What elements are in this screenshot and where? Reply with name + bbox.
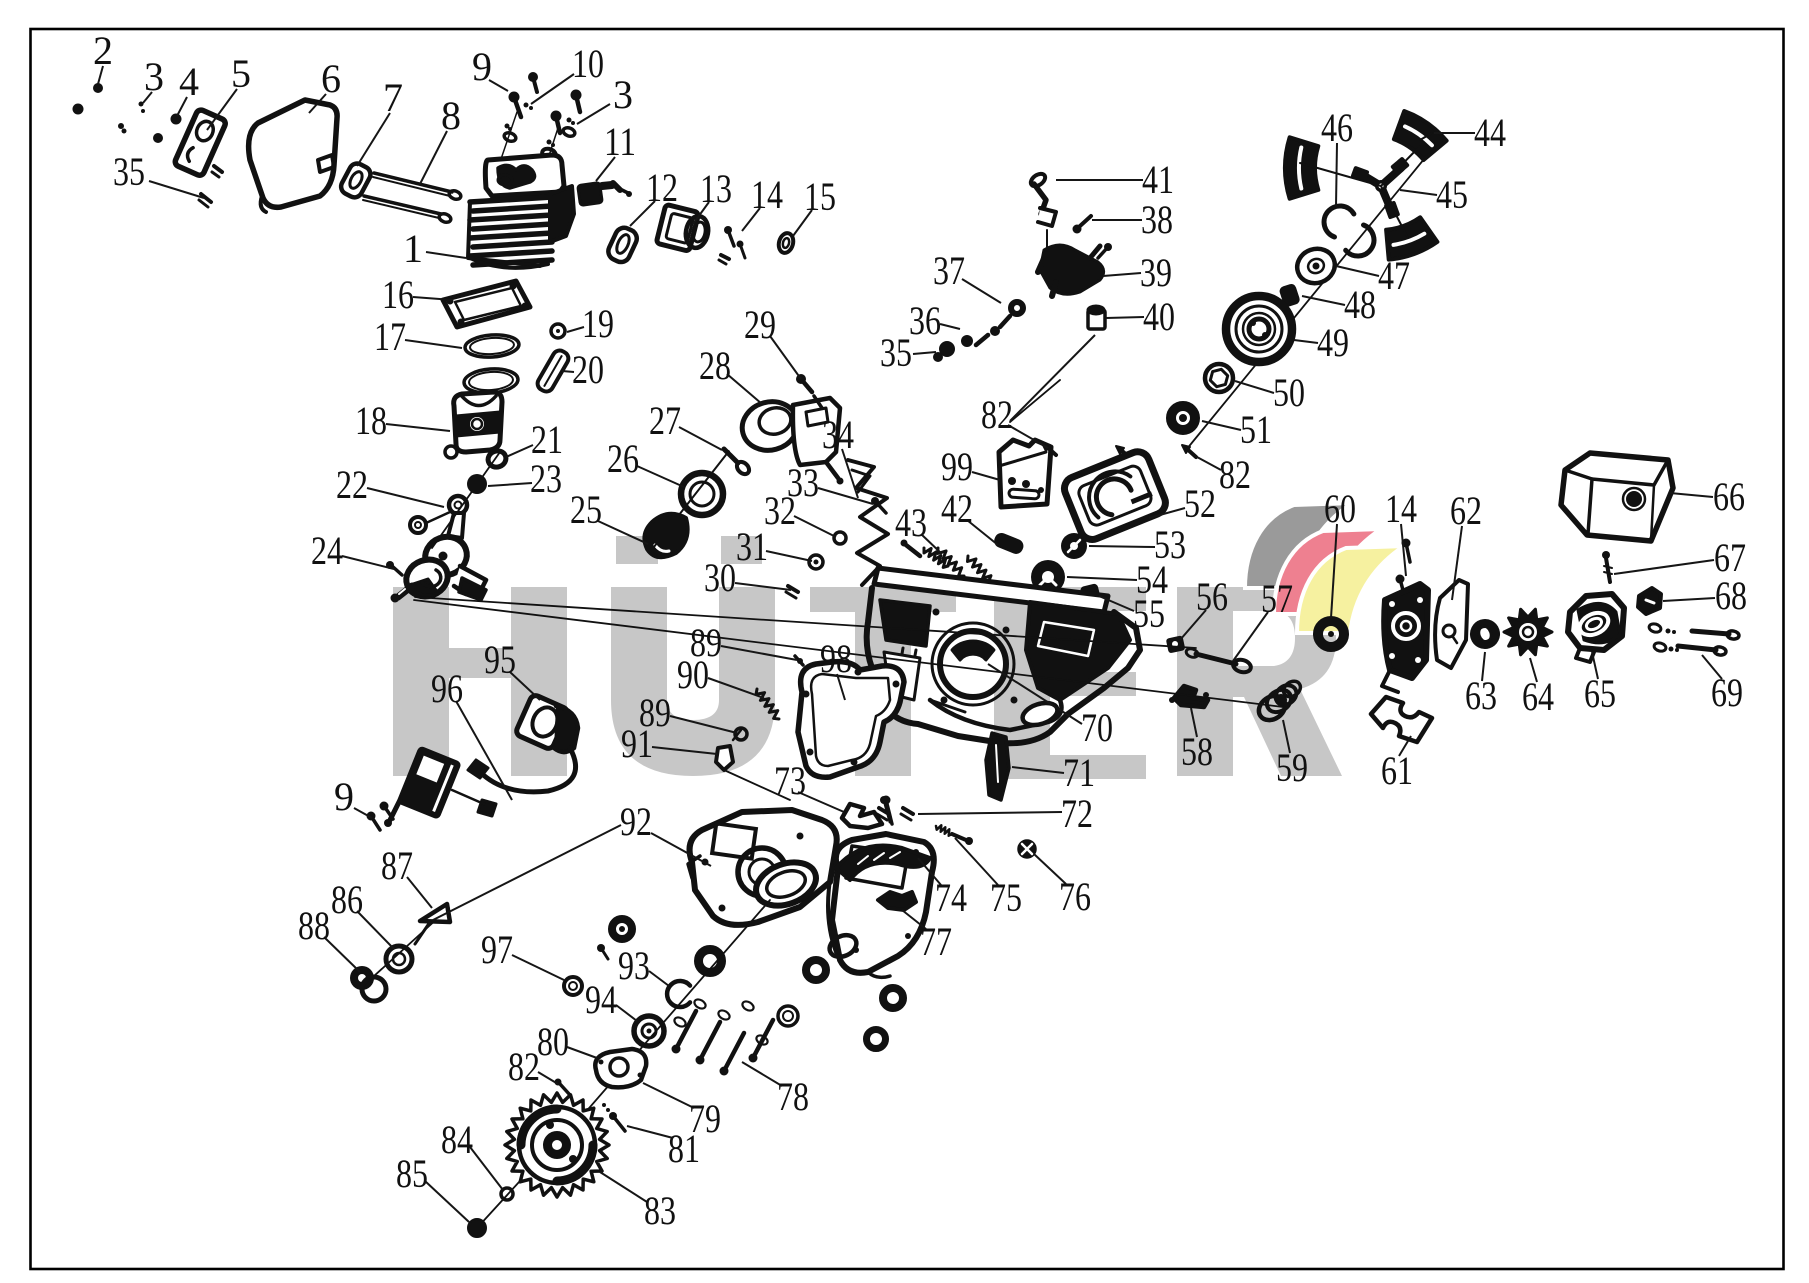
svg-text:78: 78 [777,1074,809,1119]
svg-text:14: 14 [1385,486,1417,531]
svg-text:51: 51 [1240,407,1272,452]
svg-text:97: 97 [481,927,513,972]
svg-text:38: 38 [1141,197,1173,242]
svg-text:43: 43 [895,500,927,545]
svg-text:33: 33 [787,460,819,505]
svg-text:18: 18 [355,398,387,443]
svg-text:93: 93 [618,943,650,988]
svg-text:55: 55 [1133,591,1165,636]
svg-text:75: 75 [990,875,1022,920]
svg-text:5: 5 [231,51,251,96]
svg-text:35: 35 [880,330,912,375]
svg-text:47: 47 [1378,253,1410,298]
svg-text:81: 81 [668,1126,700,1171]
svg-text:66: 66 [1713,474,1745,519]
svg-text:88: 88 [298,903,330,948]
svg-text:62: 62 [1450,488,1482,533]
svg-text:2: 2 [93,28,113,73]
svg-text:56: 56 [1196,574,1228,619]
svg-text:86: 86 [331,877,363,922]
svg-text:13: 13 [700,166,732,211]
svg-text:52: 52 [1184,481,1216,526]
svg-text:27: 27 [649,398,681,443]
svg-text:72: 72 [1061,791,1093,836]
svg-text:87: 87 [381,843,413,888]
svg-text:6: 6 [321,56,341,101]
svg-text:77: 77 [920,919,952,964]
svg-text:28: 28 [699,343,731,388]
svg-text:3: 3 [144,54,164,99]
svg-text:16: 16 [382,272,414,317]
svg-text:11: 11 [604,119,636,164]
svg-text:7: 7 [383,75,403,120]
svg-text:14: 14 [751,172,783,217]
svg-text:40: 40 [1143,294,1175,339]
svg-text:39: 39 [1140,250,1172,295]
svg-text:82: 82 [1219,452,1251,497]
svg-text:59: 59 [1276,745,1308,790]
svg-text:29: 29 [744,302,776,347]
svg-text:15: 15 [804,174,836,219]
svg-text:84: 84 [441,1117,473,1162]
svg-text:8: 8 [441,93,461,138]
svg-text:23: 23 [530,456,562,501]
svg-text:63: 63 [1465,673,1497,718]
svg-text:45: 45 [1436,172,1468,217]
svg-text:98: 98 [820,636,852,681]
svg-text:85: 85 [396,1151,428,1196]
svg-text:10: 10 [572,41,604,86]
svg-text:94: 94 [585,977,617,1022]
svg-text:22: 22 [336,462,368,507]
svg-text:34: 34 [822,412,854,457]
svg-text:58: 58 [1181,729,1213,774]
svg-text:20: 20 [572,347,604,392]
svg-text:44: 44 [1474,110,1506,155]
svg-text:36: 36 [909,298,941,343]
svg-text:19: 19 [582,301,614,346]
svg-text:92: 92 [620,799,652,844]
svg-text:74: 74 [935,875,967,920]
svg-text:9: 9 [472,44,492,89]
svg-text:60: 60 [1324,486,1356,531]
svg-text:57: 57 [1261,576,1293,621]
svg-text:64: 64 [1522,674,1554,719]
svg-text:76: 76 [1059,874,1091,919]
svg-text:71: 71 [1063,750,1095,795]
svg-text:65: 65 [1584,671,1616,716]
svg-text:30: 30 [704,555,736,600]
svg-text:12: 12 [646,165,678,210]
svg-text:3: 3 [613,72,633,117]
svg-text:70: 70 [1081,705,1113,750]
svg-text:50: 50 [1273,370,1305,415]
svg-text:4: 4 [179,59,199,104]
svg-text:95: 95 [484,637,516,682]
svg-text:1: 1 [403,226,423,271]
svg-text:49: 49 [1317,320,1349,365]
svg-text:82: 82 [508,1044,540,1089]
svg-text:91: 91 [621,721,653,766]
svg-text:96: 96 [431,666,463,711]
svg-text:41: 41 [1142,157,1174,202]
svg-text:25: 25 [570,487,602,532]
svg-text:37: 37 [933,248,965,293]
svg-text:17: 17 [374,314,406,359]
svg-text:35: 35 [113,149,145,194]
svg-text:80: 80 [537,1019,569,1064]
svg-text:24: 24 [311,528,343,573]
svg-text:99: 99 [941,444,973,489]
svg-text:90: 90 [677,652,709,697]
svg-text:46: 46 [1321,105,1353,150]
svg-text:68: 68 [1715,573,1747,618]
svg-text:61: 61 [1381,748,1413,793]
svg-text:83: 83 [644,1188,676,1233]
svg-text:69: 69 [1711,670,1743,715]
svg-text:82: 82 [981,392,1013,437]
svg-text:26: 26 [607,436,639,481]
svg-text:73: 73 [774,758,806,803]
svg-text:42: 42 [941,486,973,531]
svg-text:9: 9 [334,774,354,819]
